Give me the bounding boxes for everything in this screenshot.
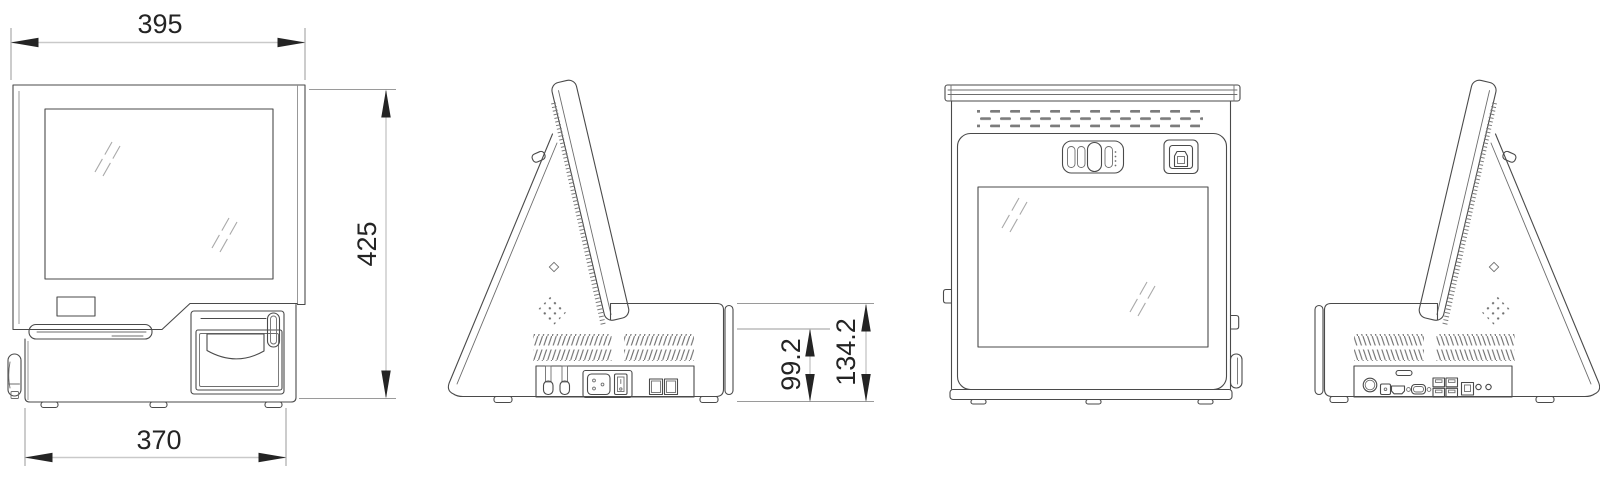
printer-door-inner xyxy=(200,334,279,387)
technical-drawing-canvas: 395 425 370 xyxy=(0,0,1600,483)
side-latch-knob-rear xyxy=(1231,354,1243,388)
side-latch-knob xyxy=(8,354,21,399)
front-bezel xyxy=(13,85,305,330)
rear-edge-strip xyxy=(725,306,733,395)
dimension-base-total-height: 134.2 xyxy=(831,305,866,401)
dimension-label-base-width: 370 xyxy=(136,425,181,455)
front-view: 395 425 370 xyxy=(8,9,396,466)
rear-square-ports xyxy=(650,379,678,395)
vga-port xyxy=(1407,385,1431,395)
dc-power-jack xyxy=(1381,384,1391,395)
right-side-tab xyxy=(1231,316,1239,330)
front-slope-inner-line xyxy=(457,143,557,384)
dimension-rear-base-height: 99.2 xyxy=(776,330,810,401)
glass-reflection xyxy=(95,142,237,252)
dimension-front-width: 395 xyxy=(11,9,305,80)
left-side-tab xyxy=(944,290,952,304)
dimension-base-width: 370 xyxy=(25,408,286,466)
top-cap xyxy=(945,85,1240,101)
ethernet-port xyxy=(1462,383,1474,396)
rubber-feet xyxy=(41,402,282,408)
base-pedestal xyxy=(950,390,1232,400)
card-swipe-slot xyxy=(29,325,152,340)
touchscreen xyxy=(45,109,273,279)
base-height-dimensions: 99.2 134.2 xyxy=(737,304,874,402)
ac-power-inlet xyxy=(588,374,611,395)
hdmi-port xyxy=(1392,386,1405,394)
pos-terminal-dimension-drawing: 395 425 370 xyxy=(0,0,1600,483)
receipt-printer xyxy=(191,311,284,394)
front-base xyxy=(25,305,296,403)
right-side-io-ports xyxy=(1363,371,1491,398)
right-side-view xyxy=(1315,79,1600,403)
usb-ports xyxy=(1433,378,1458,397)
lock-tab xyxy=(531,150,546,163)
panel-edge-serration xyxy=(554,103,604,326)
printer-door xyxy=(196,330,282,390)
round-connector xyxy=(1363,378,1377,392)
cable-pass-through xyxy=(1063,141,1124,173)
usb-device-port xyxy=(1164,140,1198,174)
rear-vent-grille xyxy=(977,108,1203,132)
dimension-label-overall-height: 425 xyxy=(352,221,382,266)
left-side-rear-ports xyxy=(544,366,678,398)
audio-jacks xyxy=(1476,384,1491,389)
dimension-label-front-width: 395 xyxy=(137,9,182,39)
customer-display-window xyxy=(978,187,1208,347)
dimension-label-base-total-height: 134.2 xyxy=(831,318,861,386)
vent-slots xyxy=(533,334,694,361)
tilted-display-panel xyxy=(550,79,630,322)
paper-flap xyxy=(207,334,264,359)
glass-reflection xyxy=(1002,198,1155,316)
speaker-grille xyxy=(538,294,569,326)
rubber-feet xyxy=(971,400,1213,405)
sim-slot xyxy=(1396,371,1412,376)
dimension-label-rear-base-height: 99.2 xyxy=(776,338,806,391)
rear-view xyxy=(944,85,1243,404)
dimension-overall-height: 425 xyxy=(299,90,396,399)
antenna-connectors xyxy=(544,366,570,395)
power-inlet-module xyxy=(583,371,632,398)
rear-panel xyxy=(958,134,1227,390)
front-label-plate xyxy=(57,297,95,316)
left-side-view xyxy=(448,79,733,403)
alignment-diamond-mark xyxy=(549,262,558,271)
